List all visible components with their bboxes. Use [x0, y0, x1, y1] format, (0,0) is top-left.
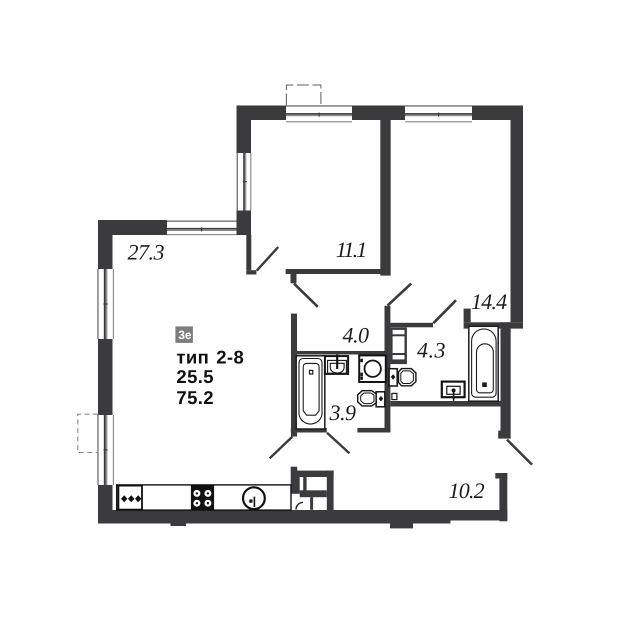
- svg-text:14.4: 14.4: [471, 289, 507, 314]
- svg-text:3.9: 3.9: [329, 400, 357, 425]
- svg-text:25.5: 25.5: [176, 366, 214, 387]
- svg-text:4.0: 4.0: [343, 323, 370, 348]
- svg-text:27.3: 27.3: [128, 240, 165, 265]
- svg-text:4.3: 4.3: [417, 338, 446, 363]
- svg-text:75.2: 75.2: [176, 387, 214, 408]
- svg-text:10.2: 10.2: [449, 478, 485, 503]
- svg-text:3е: 3е: [178, 328, 192, 342]
- svg-text:11.1: 11.1: [336, 237, 366, 262]
- svg-text:тип 2-8: тип 2-8: [176, 347, 244, 368]
